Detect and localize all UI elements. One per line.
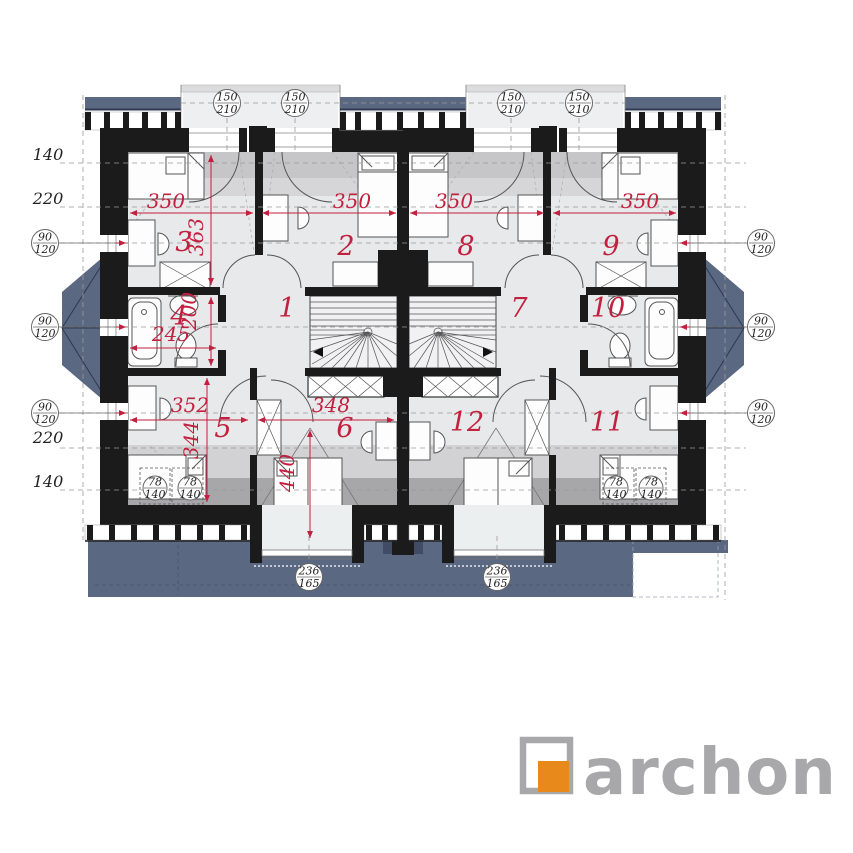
svg-text:120: 120 xyxy=(751,413,772,426)
dormer-window-tag: 150 210 xyxy=(498,90,525,117)
svg-text:236: 236 xyxy=(486,565,508,578)
logo-wordmark: archon xyxy=(583,736,837,810)
svg-text:90: 90 xyxy=(754,231,768,244)
svg-text:150: 150 xyxy=(569,91,590,104)
svg-text:78: 78 xyxy=(148,476,162,489)
room-10-label: 10 xyxy=(591,293,625,324)
svg-text:78: 78 xyxy=(644,476,658,489)
roof-window-tag: 78 140 xyxy=(639,476,663,502)
dim-348: 348 xyxy=(312,393,350,417)
floor-plan-canvas: 1 2 3 4 5 6 7 8 9 10 11 12 350 350 350 3… xyxy=(0,0,853,853)
room-12-label: 12 xyxy=(450,407,484,438)
side-window-tag: 90 120 xyxy=(32,230,59,257)
side-window-tag: 90 120 xyxy=(32,400,59,427)
svg-text:90: 90 xyxy=(38,231,52,244)
svg-text:78: 78 xyxy=(609,476,623,489)
dim-245: 245 xyxy=(151,322,190,346)
room-1-label: 1 xyxy=(278,293,295,324)
svg-text:120: 120 xyxy=(35,327,56,340)
bottom-window-tag: 236 165 xyxy=(296,564,323,591)
svg-text:120: 120 xyxy=(751,327,772,340)
dim-350-room3: 350 xyxy=(147,189,185,213)
side-window-tag: 90 120 xyxy=(32,314,59,341)
floor-plan: 1 2 3 4 5 6 7 8 9 10 11 12 350 350 350 3… xyxy=(32,85,837,810)
dim-350-room9: 350 xyxy=(621,189,659,213)
svg-text:150: 150 xyxy=(501,91,522,104)
svg-text:165: 165 xyxy=(487,577,508,590)
dormer-window-tag: 150 210 xyxy=(282,90,309,117)
dormer-window-tag: 150 210 xyxy=(214,90,241,117)
svg-text:120: 120 xyxy=(35,243,56,256)
contour-140-bottom: 140 xyxy=(33,472,64,491)
svg-text:210: 210 xyxy=(500,103,522,116)
room-5-label: 5 xyxy=(214,413,231,444)
logo-orange-square-icon xyxy=(538,761,569,792)
svg-text:236: 236 xyxy=(298,565,320,578)
room-7-label: 7 xyxy=(510,293,528,324)
svg-text:150: 150 xyxy=(217,91,238,104)
side-window-tag: 90 120 xyxy=(748,314,775,341)
room-6-label: 6 xyxy=(336,413,353,444)
svg-text:90: 90 xyxy=(38,315,52,328)
room-8-label: 8 xyxy=(457,231,474,262)
side-window-tag: 90 120 xyxy=(748,230,775,257)
roof-window-tag: 78 140 xyxy=(604,476,628,502)
svg-text:140: 140 xyxy=(145,488,166,501)
contour-220-top: 220 xyxy=(32,189,64,208)
svg-text:90: 90 xyxy=(38,401,52,414)
room-11-label: 11 xyxy=(590,407,624,438)
room-2-label: 2 xyxy=(336,231,354,262)
room-9-label: 9 xyxy=(602,231,619,262)
side-window-tag: 90 120 xyxy=(748,400,775,427)
svg-text:140: 140 xyxy=(641,488,662,501)
archon-logo: archon xyxy=(523,736,837,810)
svg-text:120: 120 xyxy=(751,243,772,256)
dim-440: 440 xyxy=(275,454,299,493)
dim-363: 363 xyxy=(184,218,208,256)
svg-text:210: 210 xyxy=(216,103,238,116)
svg-text:210: 210 xyxy=(284,103,306,116)
svg-text:140: 140 xyxy=(606,488,627,501)
contour-140-top: 140 xyxy=(33,145,64,164)
svg-text:150: 150 xyxy=(285,91,306,104)
svg-text:165: 165 xyxy=(299,577,320,590)
dim-350-room8: 350 xyxy=(435,189,473,213)
roof-window-tag: 78 140 xyxy=(178,476,202,502)
contour-220-bottom: 220 xyxy=(32,428,64,447)
roof-window-tag: 78 140 xyxy=(143,476,167,502)
svg-text:78: 78 xyxy=(183,476,197,489)
dim-344: 344 xyxy=(179,421,203,459)
svg-text:90: 90 xyxy=(754,315,768,328)
svg-text:140: 140 xyxy=(180,488,201,501)
svg-text:90: 90 xyxy=(754,401,768,414)
svg-text:120: 120 xyxy=(35,413,56,426)
dormer-window-tag: 150 210 xyxy=(566,90,593,117)
dim-352: 352 xyxy=(171,393,209,417)
dim-350-room2: 350 xyxy=(333,189,371,213)
bottom-window-tag: 236 165 xyxy=(484,564,511,591)
svg-text:210: 210 xyxy=(568,103,590,116)
